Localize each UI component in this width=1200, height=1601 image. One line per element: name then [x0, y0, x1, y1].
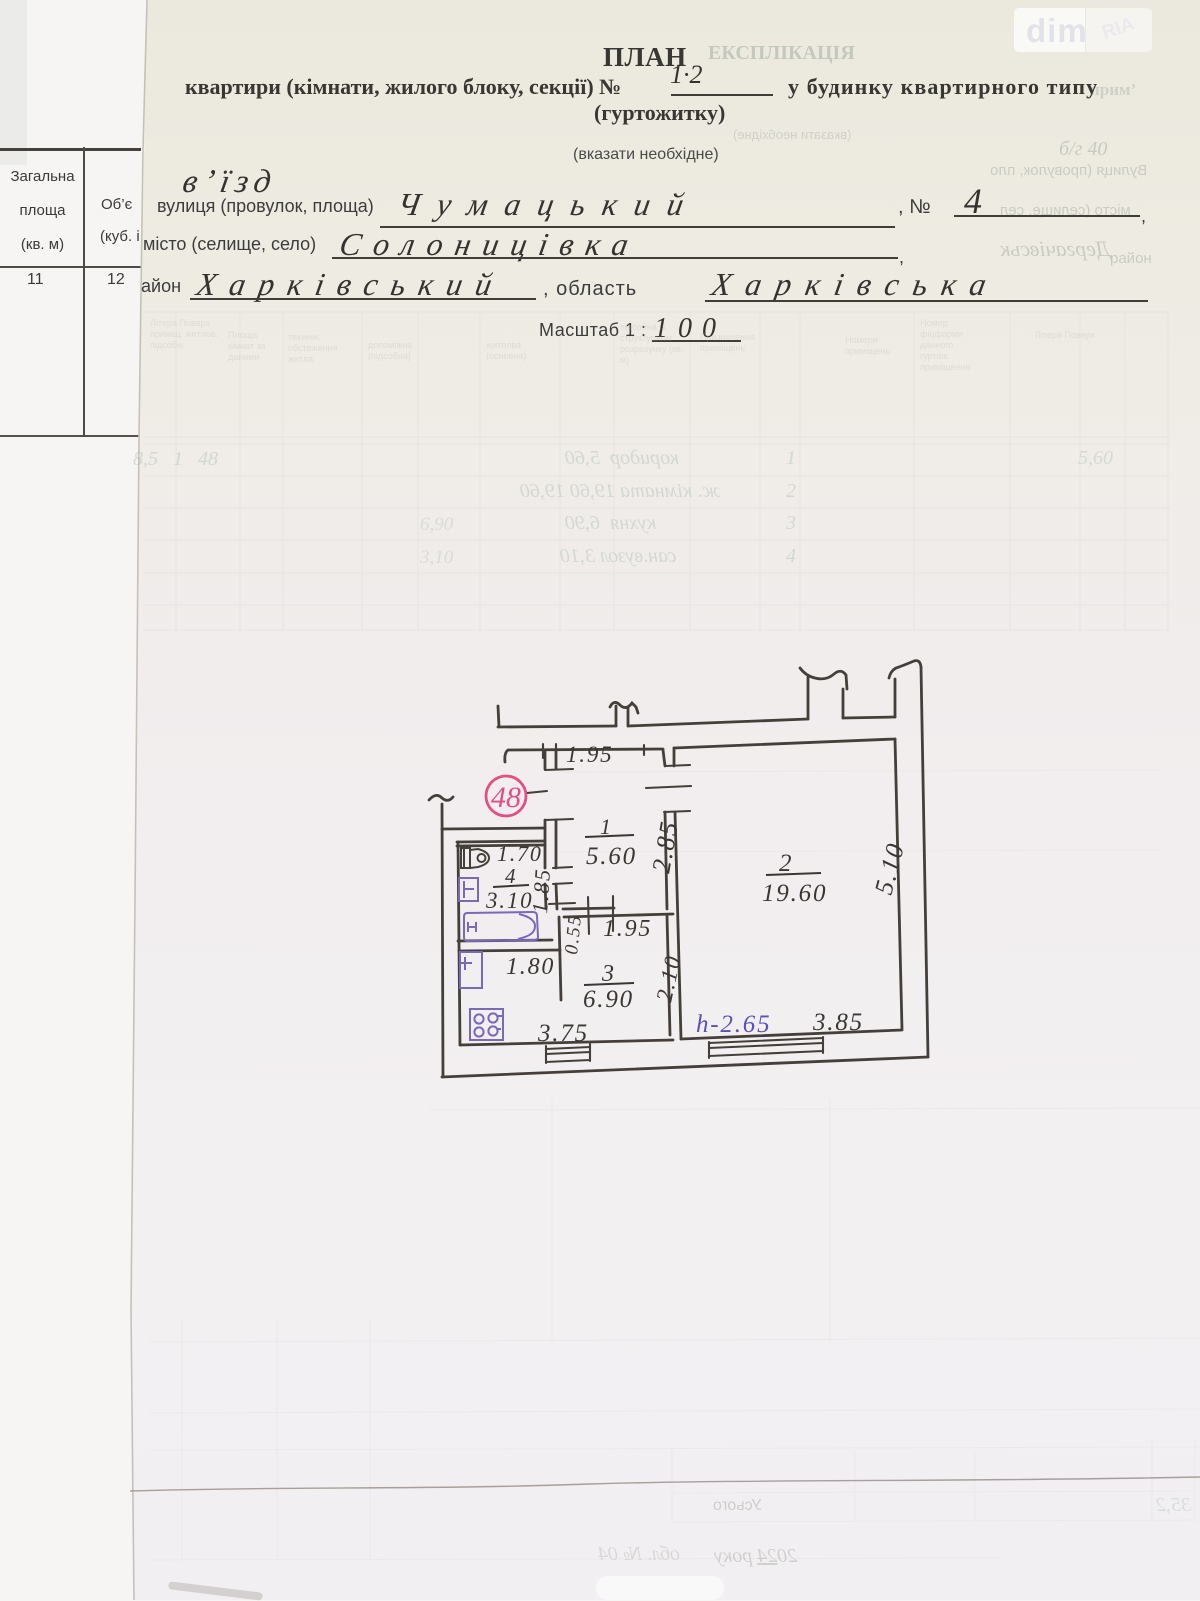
svg-text:5.10: 5.10 — [869, 839, 911, 897]
svg-text:3.10: 3.10 — [485, 888, 533, 913]
svg-text:1.95: 1.95 — [566, 742, 613, 767]
svg-text:4: 4 — [505, 864, 517, 888]
svg-text:2: 2 — [779, 850, 793, 877]
svg-text:5.60: 5.60 — [586, 843, 637, 870]
svg-text:0.55: 0.55 — [561, 913, 586, 955]
svg-text:h-2.65: h-2.65 — [696, 1011, 771, 1038]
svg-text:2.85: 2.85 — [646, 818, 684, 875]
svg-text:1.85: 1.85 — [527, 867, 555, 914]
svg-text:3.75: 3.75 — [537, 1020, 589, 1047]
svg-text:1.80: 1.80 — [506, 954, 555, 980]
svg-text:1.95: 1.95 — [603, 916, 652, 942]
svg-text:3.85: 3.85 — [812, 1009, 864, 1036]
svg-text:48: 48 — [491, 781, 521, 814]
svg-text:1.70: 1.70 — [497, 841, 543, 866]
svg-text:6.90: 6.90 — [583, 986, 634, 1013]
svg-text:19.60: 19.60 — [762, 880, 827, 907]
